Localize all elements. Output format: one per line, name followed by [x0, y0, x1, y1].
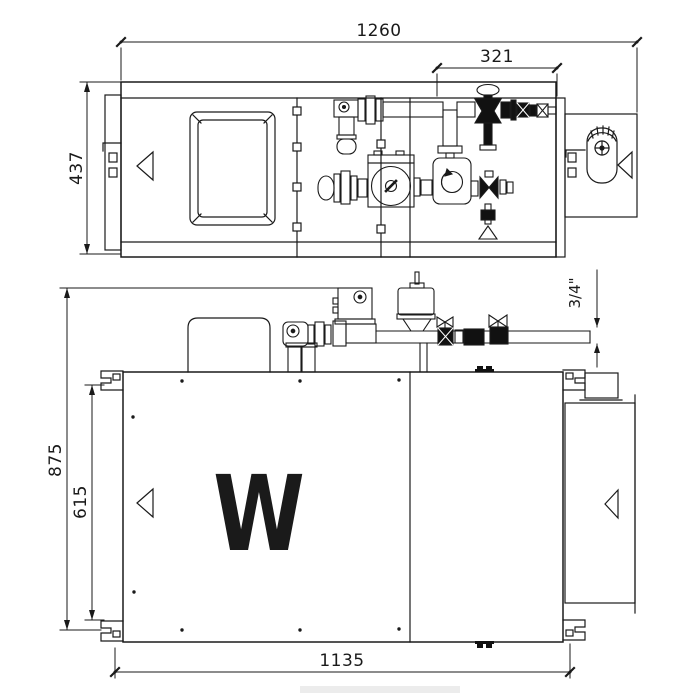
dim-label-321: 321	[480, 47, 514, 67]
pipe-elbow-icon	[283, 322, 308, 346]
dim-label-437: 437	[67, 151, 87, 185]
technical-drawing-canvas: W	[0, 0, 700, 700]
drain-valve-icon	[479, 204, 497, 239]
dim-pipe-size: 3/4"	[566, 270, 600, 367]
mounting-clip-icon	[101, 370, 585, 641]
pipe-elbow-icon	[334, 100, 358, 154]
dimensions: 1260 321 437 875	[46, 21, 641, 678]
dim-piping-width: 321	[433, 47, 561, 96]
damper-actuator-icon	[587, 126, 617, 183]
air-separator-icon	[397, 272, 435, 331]
hose-fitting	[318, 176, 334, 200]
dim-cabinet-height: 615	[71, 385, 104, 620]
top-right-extension	[565, 114, 637, 217]
valve-actuator-icon	[333, 288, 375, 324]
front-cabinet	[123, 372, 563, 642]
check-valve-icon	[480, 171, 498, 198]
dim-cabinet-width: 1135	[111, 644, 574, 678]
drawing-svg: W	[0, 0, 700, 700]
left-flange	[105, 95, 121, 250]
pipe-run	[383, 102, 443, 117]
ball-valve-icon	[437, 317, 453, 345]
valve-body	[346, 324, 376, 343]
door-panel	[190, 112, 275, 225]
mounting-clip-icon	[566, 150, 585, 177]
circulation-pump-icon	[368, 151, 414, 207]
top-view	[103, 82, 637, 257]
ball-valve-icon	[489, 315, 508, 344]
front-view: W	[101, 272, 635, 648]
shutoff-valve-icon	[475, 85, 548, 151]
airflow-triangle-icon	[137, 152, 153, 180]
airflow-triangle-icon	[605, 490, 618, 518]
hood-box	[188, 318, 270, 372]
mixing-valve-icon	[433, 158, 471, 204]
dim-label-1260: 1260	[356, 21, 401, 41]
dim-label-875: 875	[46, 443, 66, 477]
mounting-clip-icon	[103, 143, 121, 177]
piping-assembly-top	[318, 85, 556, 240]
riser-pipe	[288, 347, 301, 372]
scan-artifact	[300, 686, 460, 693]
right-flange	[556, 98, 565, 257]
dim-label-615: 615	[71, 485, 91, 519]
pipe-union	[358, 99, 365, 121]
airflow-triangle-icon	[137, 489, 153, 517]
edge-clip	[475, 366, 494, 648]
right-extension	[565, 373, 635, 613]
logo-letter: W	[213, 455, 305, 575]
dim-label-1135: 1135	[319, 651, 364, 671]
piping-assembly-front	[283, 272, 590, 372]
dim-label-pipe-size: 3/4"	[566, 277, 584, 308]
junction-box	[585, 373, 618, 398]
airflow-triangle-icon	[618, 152, 632, 178]
